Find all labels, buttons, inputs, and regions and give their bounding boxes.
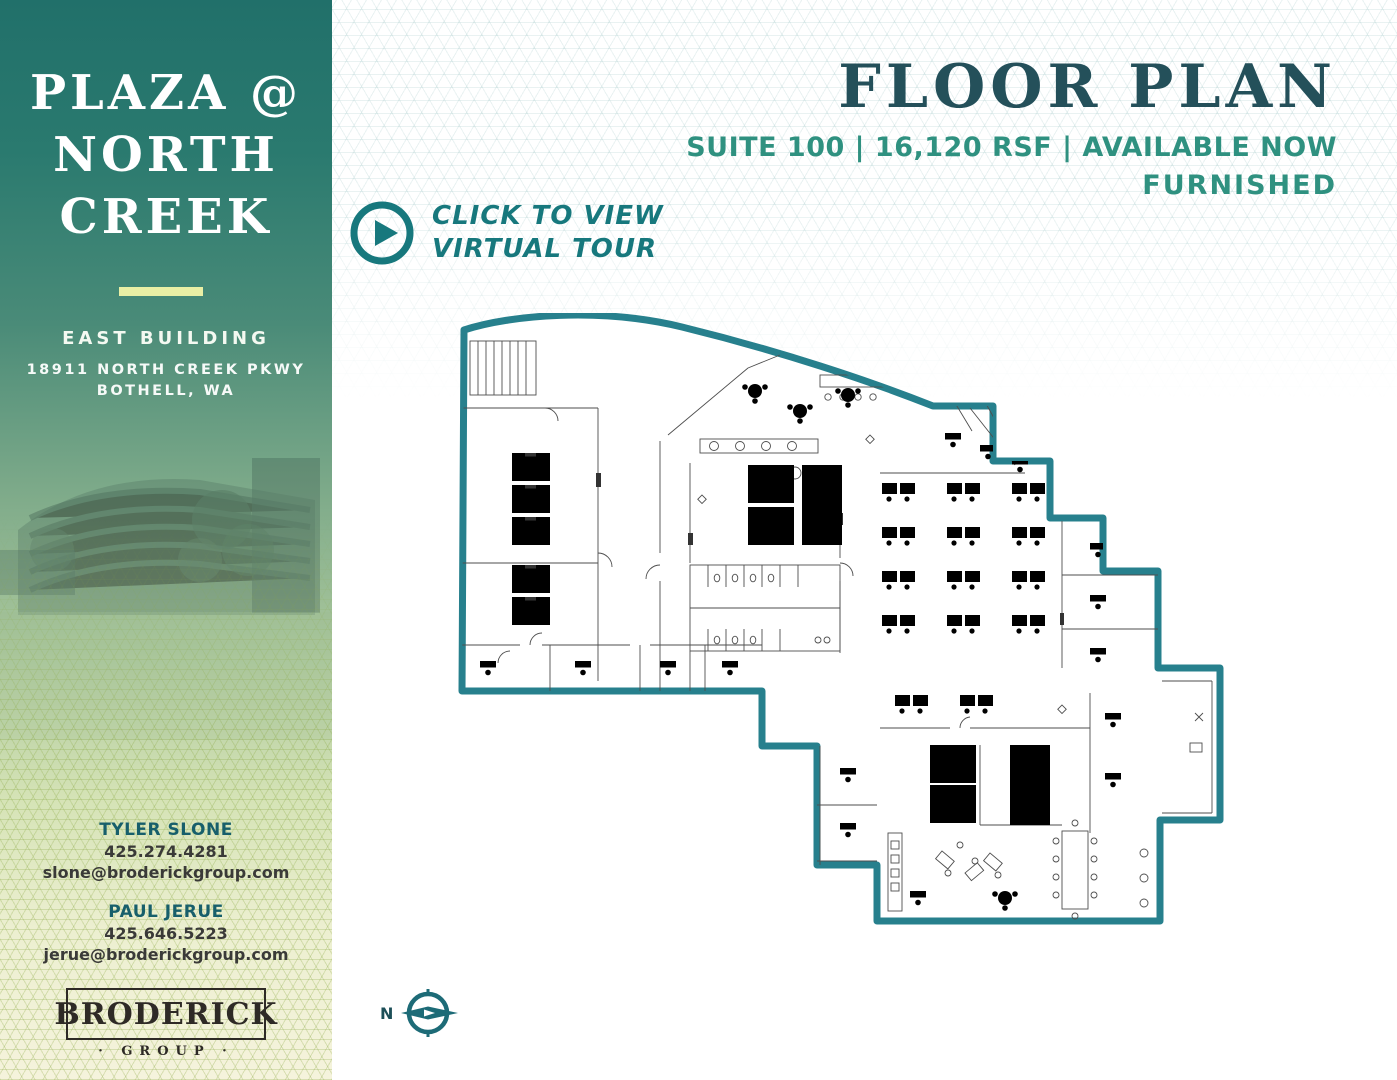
contact-tyler-slone: TYLER SLONE 425.274.4281 slone@broderick… [0, 820, 332, 883]
flyer-page: PLAZA @ NORTH CREEK EAST BUILDING 18911 … [0, 0, 1397, 1080]
play-icon[interactable] [350, 201, 414, 265]
virtual-tour-label[interactable]: CLICK TO VIEW VIRTUAL TOUR [432, 200, 664, 266]
title-divider [119, 287, 203, 296]
page-title: FLOOR PLAN [838, 52, 1337, 122]
property-title-line1: PLAZA @ [0, 62, 332, 124]
contact-phone: 425.274.4281 [0, 841, 332, 862]
logo-wordmark: BRODERICK [54, 997, 277, 1032]
address-line2: BOTHELL, WA [0, 381, 332, 402]
contact-phone: 425.646.5223 [0, 923, 332, 944]
north-compass-icon: N [374, 986, 486, 1044]
building-name: EAST BUILDING [0, 328, 332, 349]
sidebar: PLAZA @ NORTH CREEK EAST BUILDING 18911 … [0, 0, 332, 1080]
contact-name: PAUL JERUE [0, 902, 332, 923]
property-title-line2: NORTH [0, 124, 332, 186]
building-address: 18911 NORTH CREEK PKWY BOTHELL, WA [0, 360, 332, 402]
contact-email[interactable]: slone@broderickgroup.com [0, 862, 332, 883]
property-title: PLAZA @ NORTH CREEK [0, 62, 332, 248]
virtual-tour-button[interactable]: CLICK TO VIEW VIRTUAL TOUR [350, 200, 664, 266]
suite-details: SUITE 100 | 16,120 RSF | AVAILABLE NOW [686, 132, 1337, 163]
virtual-tour-line1[interactable]: CLICK TO VIEW [432, 200, 664, 233]
broderick-group-logo: BRODERICK [66, 988, 266, 1040]
contact-name: TYLER SLONE [0, 820, 332, 841]
floor-plan [450, 313, 1240, 963]
furnished-label: FURNISHED [1142, 170, 1337, 201]
contact-paul-jerue: PAUL JERUE 425.646.5223 jerue@broderickg… [0, 902, 332, 965]
main-content: FLOOR PLAN SUITE 100 | 16,120 RSF | AVAI… [332, 0, 1397, 1080]
logo-subtitle: · GROUP · [0, 1044, 332, 1059]
compass-north-label: N [380, 1004, 393, 1023]
contact-email[interactable]: jerue@broderickgroup.com [0, 944, 332, 965]
virtual-tour-line2[interactable]: VIRTUAL TOUR [432, 233, 664, 266]
floor-plan-outline [462, 315, 1220, 921]
address-line1: 18911 NORTH CREEK PKWY [0, 360, 332, 381]
property-title-line3: CREEK [0, 186, 332, 248]
